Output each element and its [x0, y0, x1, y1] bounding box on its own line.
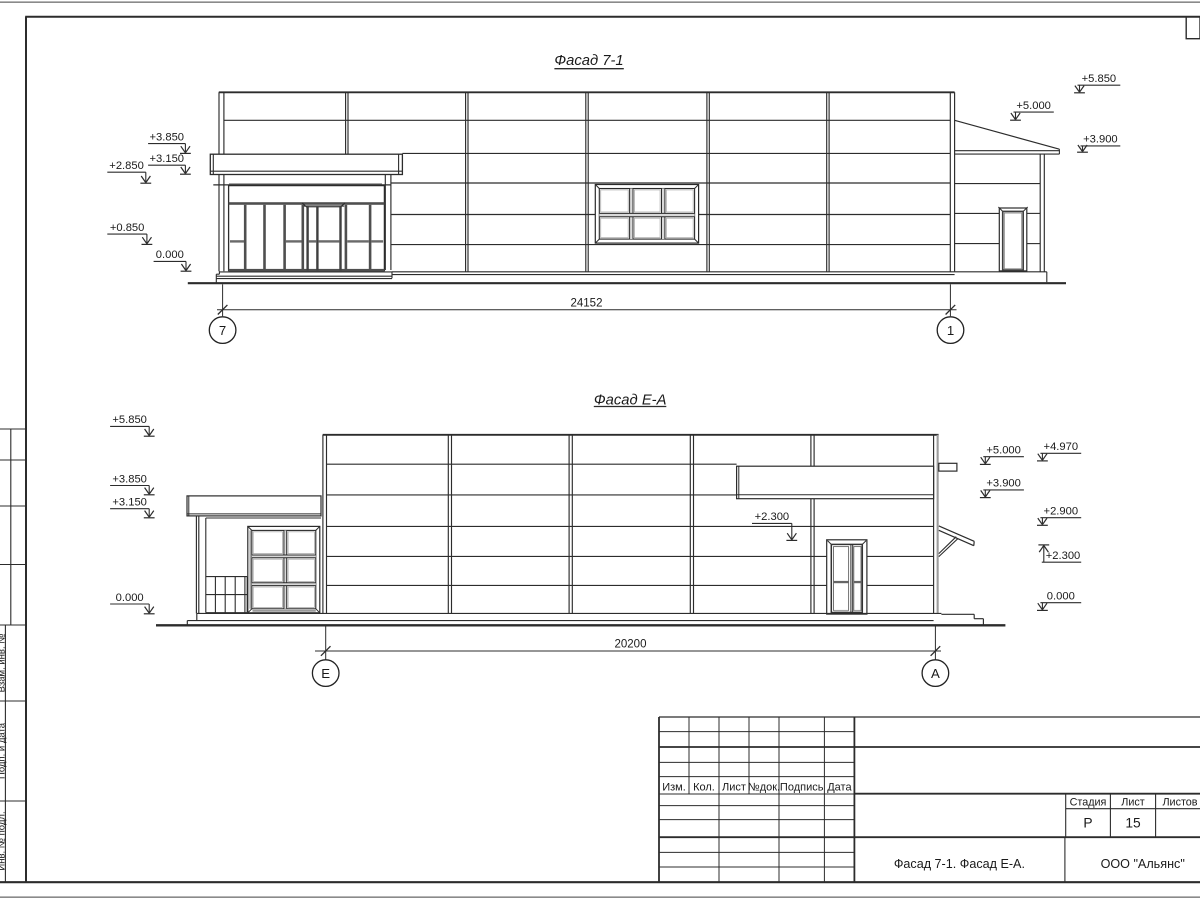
svg-text:1: 1	[947, 323, 954, 338]
svg-text:0.000: 0.000	[156, 249, 184, 261]
svg-text:+2.300: +2.300	[1046, 550, 1081, 562]
svg-text:+2.850: +2.850	[109, 160, 144, 172]
svg-text:24152: 24152	[571, 297, 603, 309]
svg-text:№док.: №док.	[748, 782, 780, 794]
svg-text:+3.850: +3.850	[112, 473, 147, 485]
svg-text:ООО "Альянс": ООО "Альянс"	[1101, 857, 1185, 871]
svg-text:+3.900: +3.900	[986, 478, 1021, 490]
svg-text:Изм.: Изм.	[662, 782, 686, 794]
svg-text:7: 7	[219, 323, 226, 338]
svg-text:0.000: 0.000	[1047, 591, 1075, 603]
svg-text:Р: Р	[1083, 815, 1092, 830]
svg-text:Инв. № подл.: Инв. № подл.	[0, 811, 8, 870]
svg-text:Кол.: Кол.	[693, 782, 715, 794]
svg-text:Лист: Лист	[722, 782, 746, 794]
svg-text:Стадия: Стадия	[1070, 796, 1107, 808]
svg-text:+2.300: +2.300	[755, 511, 790, 523]
svg-text:Дата: Дата	[827, 782, 852, 794]
svg-text:+5.850: +5.850	[1082, 73, 1117, 85]
svg-text:+5.850: +5.850	[112, 414, 147, 426]
svg-text:+3.150: +3.150	[112, 497, 147, 509]
svg-text:+0.850: +0.850	[110, 222, 145, 234]
svg-text:Взам. инв. №: Взам. инв. №	[0, 634, 8, 693]
svg-text:+2.900: +2.900	[1044, 506, 1079, 518]
svg-text:+3.850: +3.850	[149, 131, 184, 143]
svg-text:+5.000: +5.000	[1016, 100, 1051, 112]
svg-text:Фасад 7-1. Фасад Е-А.: Фасад 7-1. Фасад Е-А.	[894, 857, 1025, 871]
svg-text:Подпись: Подпись	[780, 782, 824, 794]
svg-text:Е: Е	[321, 666, 330, 681]
svg-text:Листов: Листов	[1162, 796, 1197, 808]
svg-text:А: А	[931, 666, 940, 681]
svg-text:+5.000: +5.000	[986, 445, 1021, 457]
svg-text:20200: 20200	[615, 639, 647, 651]
svg-text:0.000: 0.000	[116, 592, 144, 604]
svg-text:+3.900: +3.900	[1083, 134, 1118, 146]
svg-text:+4.970: +4.970	[1044, 441, 1079, 453]
svg-text:Подп. и дата: Подп. и дата	[0, 722, 8, 779]
svg-text:Лист: Лист	[1121, 796, 1145, 808]
svg-text:+3.150: +3.150	[149, 153, 184, 165]
svg-text:15: 15	[1125, 815, 1141, 830]
svg-text:Фасад 7-1: Фасад 7-1	[554, 53, 623, 69]
